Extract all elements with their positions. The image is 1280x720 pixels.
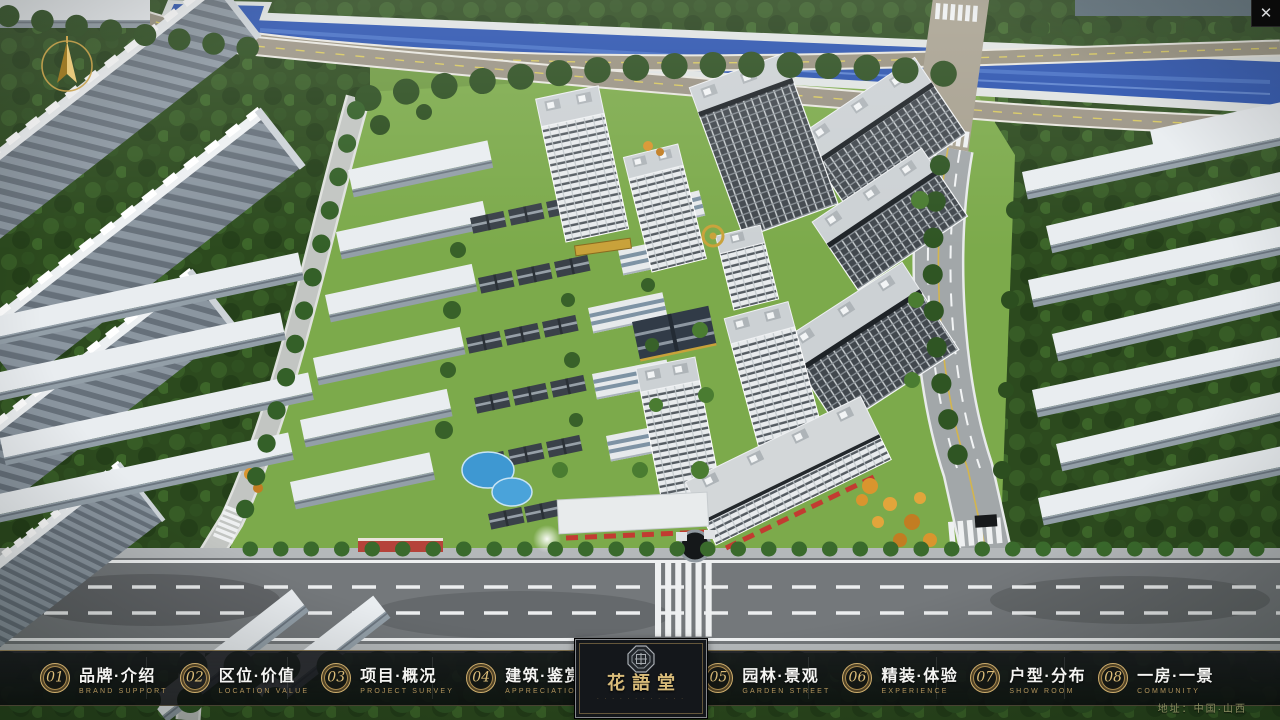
menu-item-caption: APPRECIATION: [505, 688, 583, 695]
menu-item-floorplan-distribution[interactable]: 07 户型·分布 SHOW ROOM: [964, 651, 1092, 705]
project-name-caption: · · · · · · · · · · · ·: [597, 696, 685, 702]
menu-left-group: 01 品牌·介绍 BRAND SUPPORT 02 区位·价值 LOCATION…: [0, 651, 580, 705]
project-address: 地址：中国·山西: [1158, 700, 1247, 715]
close-icon: ✕: [1260, 4, 1273, 22]
menu-item-interior-experience[interactable]: 06 精装·体验 EXPERIENCE: [836, 651, 964, 705]
menu-item-number-badge: 02: [180, 663, 210, 693]
menu-item-label: 精装·体验: [881, 662, 958, 686]
menu-item-number-badge: 07: [970, 663, 1000, 693]
masterplan-render[interactable]: [0, 0, 1280, 720]
menu-item-number-badge: 08: [1098, 663, 1128, 693]
menu-item-caption: EXPERIENCE: [881, 688, 958, 695]
menu-item-caption: LOCATION VALUE: [219, 688, 309, 695]
menu-item-label: 区位·价值: [219, 662, 309, 686]
menu-item-number-badge: 06: [842, 663, 872, 693]
project-logo-panel[interactable]: 花語堂 · · · · · · · · · · · ·: [575, 639, 707, 718]
vignette: [0, 0, 1280, 720]
menu-item-number-badge: 01: [40, 663, 70, 693]
close-button[interactable]: ✕: [1251, 0, 1280, 27]
menu-item-architecture[interactable]: 04 建筑·鉴赏 APPRECIATION: [460, 651, 589, 705]
menu-item-label: 户型·分布: [1009, 662, 1086, 686]
menu-item-caption: SHOW ROOM: [1009, 688, 1086, 695]
menu-item-label: 项目·概况: [360, 662, 454, 686]
menu-item-location-value[interactable]: 02 区位·价值 LOCATION VALUE: [174, 651, 315, 705]
menu-item-label: 一房·一景: [1137, 662, 1214, 686]
menu-item-number-badge: 05: [703, 663, 733, 693]
menu-item-project-overview[interactable]: 03 项目·概况 PROJECT SURVEY: [315, 651, 460, 705]
logo-seal-icon: [627, 645, 655, 673]
menu-item-brand-intro[interactable]: 01 品牌·介绍 BRAND SUPPORT: [34, 651, 174, 705]
menu-item-caption: PROJECT SURVEY: [360, 688, 454, 695]
menu-item-room-view[interactable]: 08 一房·一景 COMMUNITY: [1092, 651, 1220, 705]
menu-item-landscape[interactable]: 05 园林·景观 GARDEN STREET: [697, 651, 836, 705]
menu-item-label: 园林·景观: [742, 662, 830, 686]
menu-item-caption: COMMUNITY: [1137, 688, 1214, 695]
menu-item-caption: GARDEN STREET: [742, 688, 830, 695]
presentation-stage: ✕ 01 品牌·介绍 BRAND SUPPORT 02 区位·价值 LOCATI…: [0, 0, 1280, 720]
menu-right-group: 05 园林·景观 GARDEN STREET 06 精装·体验 EXPERIEN…: [667, 651, 1280, 705]
menu-item-caption: BRAND SUPPORT: [79, 688, 168, 695]
menu-item-label: 品牌·介绍: [79, 662, 168, 686]
menu-item-label: 建筑·鉴赏: [505, 662, 583, 686]
menu-item-number-badge: 03: [321, 663, 351, 693]
menu-item-number-badge: 04: [466, 663, 496, 693]
project-name: 花語堂: [600, 675, 682, 693]
